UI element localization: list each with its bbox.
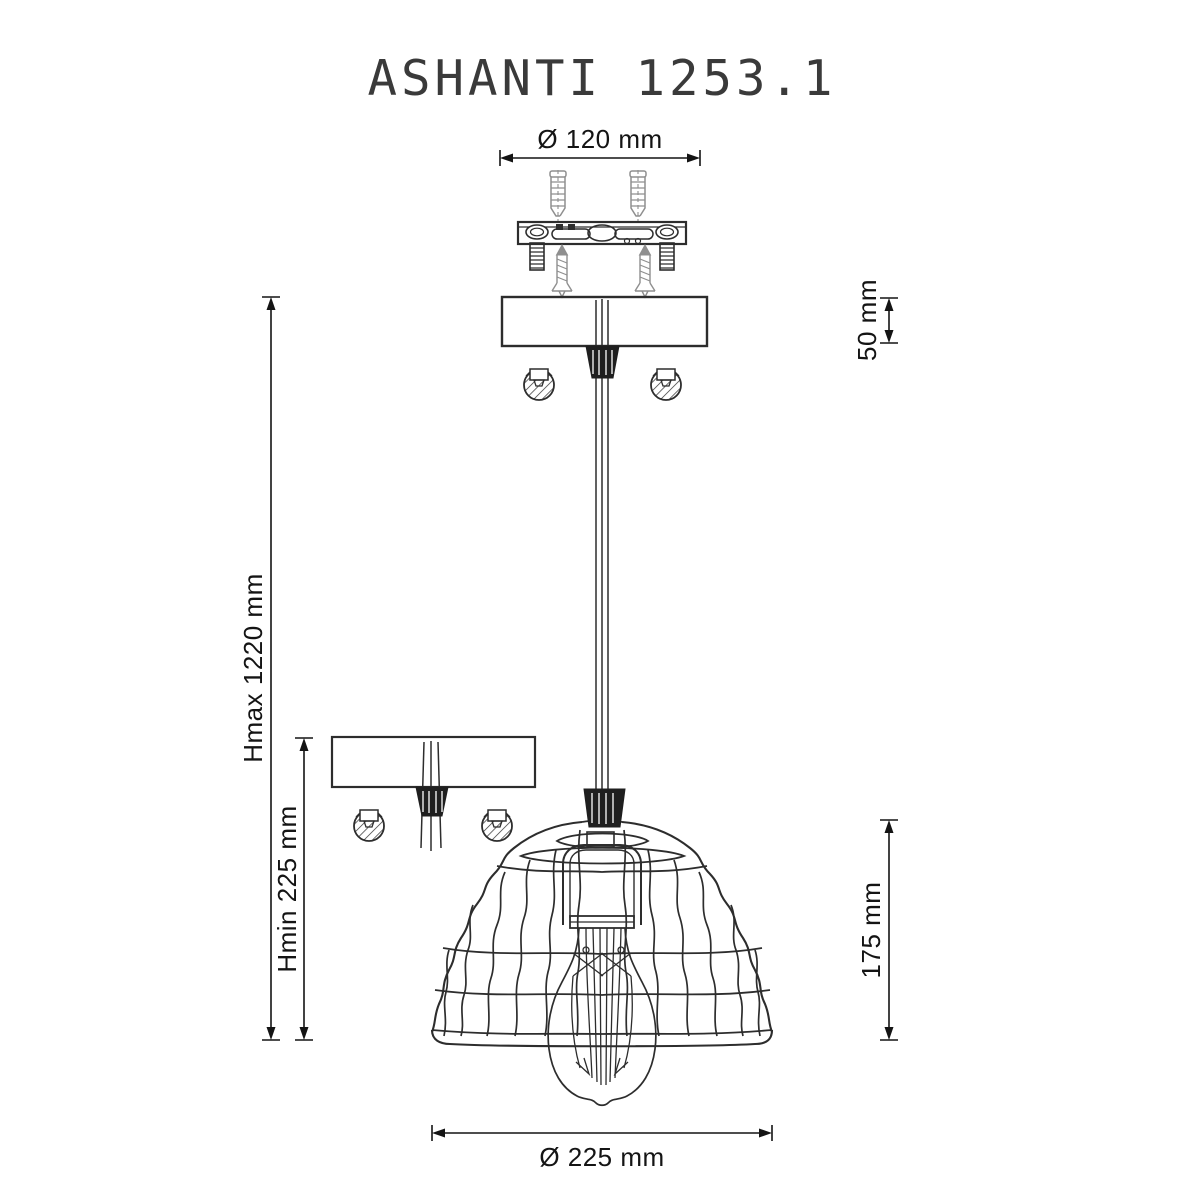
shade-rib: [545, 850, 556, 1036]
ceiling-canopy-min-view: [332, 737, 535, 851]
lamp-shade: [432, 789, 772, 1105]
arrow-up-icon: [885, 298, 894, 311]
dim-shade-height: 175 mm: [856, 820, 898, 1040]
arrow-left-icon: [500, 154, 513, 163]
page-title: ASHANTI 1253.1: [367, 50, 836, 107]
bolt-icon: [656, 225, 678, 270]
shade-rib: [674, 860, 689, 1036]
wall-anchor-icon: [630, 170, 646, 222]
screw-cap-icon: [524, 369, 554, 400]
shade-rib: [515, 860, 530, 1036]
strain-relief-cone: [586, 346, 619, 378]
plate-slot: [615, 229, 653, 239]
arrow-right-icon: [687, 154, 700, 163]
lamp-socket: [563, 832, 641, 928]
cord-grip: [584, 789, 625, 827]
shade-outline-left: [432, 822, 582, 1032]
screw-cap-icon: [651, 369, 681, 400]
wall-anchor-icon: [550, 170, 566, 222]
technical-drawing-page: ASHANTI 1253.1 Ø 120 mm: [0, 0, 1200, 1200]
dim-min-height: Hmin 225 mm: [272, 738, 313, 1040]
dim-shade-diameter: Ø 225 mm: [432, 1125, 772, 1172]
shade-rib: [648, 850, 659, 1036]
arrow-up-icon: [885, 820, 894, 833]
pendant-lamp-dimension-diagram: ASHANTI 1253.1 Ø 120 mm: [0, 0, 1200, 1200]
ceiling-canopy: [502, 297, 707, 790]
dim-canopy-diameter-label: Ø 120 mm: [537, 124, 662, 154]
dim-shade-diameter-label: Ø 225 mm: [539, 1142, 664, 1172]
screw-cap-icon: [354, 810, 384, 841]
dim-max-height-label: Hmax 1220 mm: [238, 573, 268, 763]
strain-relief-cone: [416, 787, 448, 816]
bolt-icon: [526, 225, 548, 270]
arrow-up-icon: [300, 738, 309, 751]
arrow-up-icon: [267, 297, 276, 310]
bulb-filament: [572, 928, 633, 1085]
shade-rib: [755, 950, 760, 1036]
plate-slot: [552, 229, 590, 239]
shade-rim: [432, 1030, 772, 1034]
shade-rib: [487, 872, 505, 1036]
mounting-bracket-assembly: [518, 170, 686, 297]
arrow-down-icon: [300, 1027, 309, 1040]
dim-canopy-diameter: Ø 120 mm: [500, 124, 700, 166]
dim-canopy-height-label: 50 mm: [852, 279, 882, 361]
arrow-down-icon: [267, 1027, 276, 1040]
dim-shade-height-label: 175 mm: [856, 882, 886, 979]
screw-icon: [635, 245, 655, 297]
arrow-right-icon: [759, 1129, 772, 1138]
shade-ring: [435, 990, 770, 995]
arrow-down-icon: [885, 1027, 894, 1040]
dim-min-height-label: Hmin 225 mm: [272, 805, 302, 972]
screw-icon: [552, 245, 572, 297]
dim-canopy-height: 50 mm: [852, 279, 898, 361]
shade-rib: [699, 872, 717, 1036]
screw-cap-icon: [482, 810, 512, 841]
shade-outline-right: [622, 822, 772, 1032]
arrow-left-icon: [432, 1129, 445, 1138]
arrow-down-icon: [885, 330, 894, 343]
shade-rib: [444, 950, 449, 1036]
